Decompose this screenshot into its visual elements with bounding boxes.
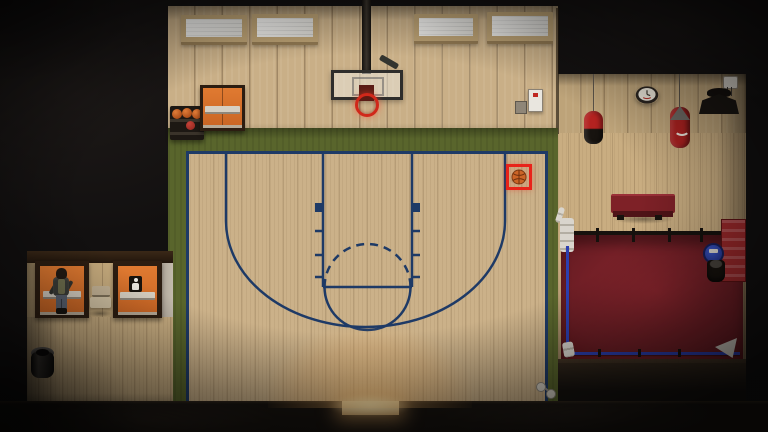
player-vest [58, 279, 65, 294]
punching-bag[interactable] [584, 111, 603, 144]
bag-logo [674, 123, 690, 136]
rope-clip [638, 349, 641, 357]
cord [731, 87, 732, 96]
window [181, 15, 247, 45]
folding-chair-seat [90, 297, 111, 308]
door-threshold [203, 125, 242, 128]
rope-clip [598, 349, 601, 357]
door-threshold [118, 312, 157, 315]
dumbbell-plate [536, 382, 546, 392]
rack-shelf [170, 132, 204, 135]
chair-shadow [88, 310, 112, 317]
wall-clock [635, 86, 659, 104]
ring-base-shadow [558, 359, 746, 405]
bag-chain [679, 74, 680, 108]
window-pane [492, 16, 548, 36]
rail-post [632, 228, 635, 242]
three-point-line [226, 153, 505, 328]
rack-basketball [182, 108, 192, 118]
door-push-bar [205, 106, 240, 114]
window-pane [419, 18, 473, 36]
rail-post [700, 228, 703, 242]
doorway-light-core [328, 394, 412, 416]
game-viewport [0, 0, 768, 432]
restroom-door[interactable] [118, 266, 157, 315]
free-throw-circle-dashed [325, 244, 411, 287]
lane-block-right [412, 203, 420, 212]
restroom-sign-icon [129, 276, 142, 292]
window [487, 12, 553, 44]
ring-rope-bottom [566, 352, 740, 355]
window [414, 14, 478, 44]
ring-rope-left [566, 246, 569, 356]
basketball-pickup[interactable] [506, 164, 532, 190]
bench-leg [655, 215, 662, 220]
rail-post [668, 228, 671, 242]
player-character[interactable] [52, 268, 70, 315]
rack-ball-red [186, 121, 195, 130]
ring-back-rail [566, 231, 738, 235]
bag-chain [593, 74, 594, 112]
wall-corner-seam [556, 8, 559, 134]
folding-chair [92, 286, 110, 297]
window-pane [186, 19, 242, 37]
hoop-pole [362, 0, 371, 74]
ring-corner-pad [562, 341, 575, 358]
basketball-icon [511, 169, 527, 185]
rack-basketball [172, 109, 182, 119]
wall-notice [515, 101, 527, 114]
lane-block-left [315, 203, 323, 212]
basketball-rim[interactable] [355, 93, 379, 117]
rope-clip [678, 349, 681, 357]
bench-leg [617, 215, 624, 220]
door-push-bar [120, 292, 155, 300]
window-pane [257, 18, 313, 37]
exit-door[interactable] [203, 88, 242, 128]
first-aid-box [528, 89, 543, 112]
rail-post [596, 228, 599, 242]
punching-bag-striped[interactable] [670, 107, 690, 148]
window [252, 14, 318, 45]
player-shoes [56, 308, 67, 314]
lane-hash-marks [315, 231, 420, 277]
spit-bucket [707, 260, 725, 282]
trash-can-opening [36, 349, 49, 356]
player-head [56, 268, 67, 279]
player-jeans [56, 295, 67, 309]
dumbbell-plate [546, 389, 556, 399]
